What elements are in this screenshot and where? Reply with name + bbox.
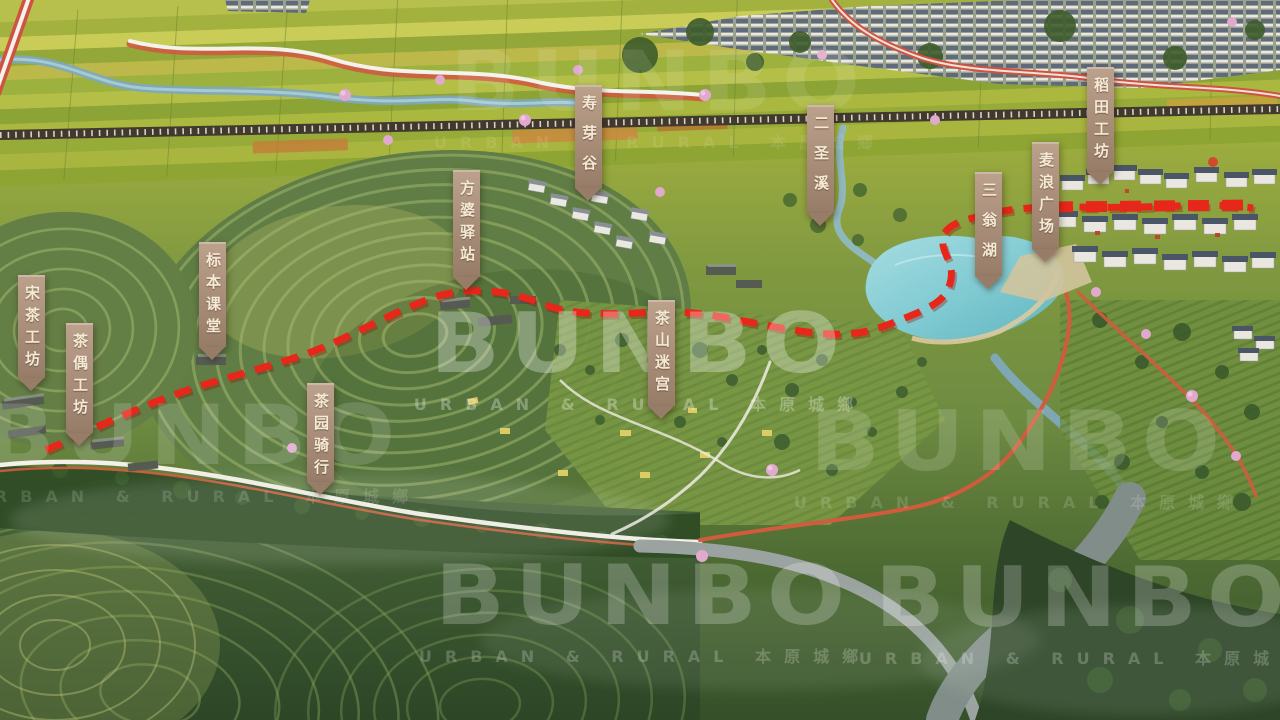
- marker-pointer: [807, 213, 833, 226]
- masterplan-aerial-map: BUNBO URBAN & RURAL 本原城鄉 BUNBO URBAN & R…: [0, 0, 1280, 720]
- marker-tea-garden-cycling: 茶园骑行: [307, 383, 334, 482]
- marker-mailang-plaza: 麦浪广场: [1032, 142, 1059, 249]
- marker-tea-mountain-maze: 茶山迷宫: [648, 300, 675, 406]
- marker-pointer: [199, 347, 225, 360]
- marker-label: 稻田工坊: [1093, 67, 1108, 165]
- marker-pointer: [975, 276, 1001, 289]
- marker-song-cha-workshop: 宋茶工坊: [18, 275, 45, 378]
- marker-pointer: [453, 277, 479, 290]
- marker-pointer: [18, 378, 44, 391]
- marker-shouya-valley: 寿芽谷: [575, 85, 602, 188]
- marker-fangpo-station: 方婆驿站: [453, 170, 480, 277]
- marker-label: 寿芽谷: [581, 85, 596, 185]
- marker-label: 麦浪广场: [1038, 142, 1053, 240]
- marker-label: 标本课堂: [205, 242, 220, 340]
- marker-cha-ou-workshop: 茶偶工坊: [66, 323, 93, 433]
- marker-sanweng-lake: 三翁湖: [975, 172, 1002, 276]
- marker-specimen-classroom: 标本课堂: [199, 242, 226, 347]
- marker-label: 宋茶工坊: [24, 275, 39, 373]
- marker-rice-field-workshop: 稻田工坊: [1087, 67, 1114, 172]
- marker-pointer: [648, 406, 674, 419]
- marker-label: 茶园骑行: [313, 383, 328, 481]
- marker-pointer: [1032, 249, 1058, 262]
- marker-pointer: [575, 188, 601, 201]
- marker-label: 茶偶工坊: [72, 323, 87, 421]
- marker-label: 茶山迷宫: [654, 300, 669, 398]
- marker-pointer: [66, 433, 92, 446]
- marker-label: 二圣溪: [813, 105, 828, 205]
- marker-label: 三翁湖: [981, 172, 996, 272]
- marker-pointer: [1087, 172, 1113, 185]
- marker-pointer: [307, 482, 333, 495]
- marker-label: 方婆驿站: [459, 170, 474, 268]
- hot-air-balloon: [1208, 157, 1218, 167]
- marker-ersheng-creek: 二圣溪: [807, 105, 834, 213]
